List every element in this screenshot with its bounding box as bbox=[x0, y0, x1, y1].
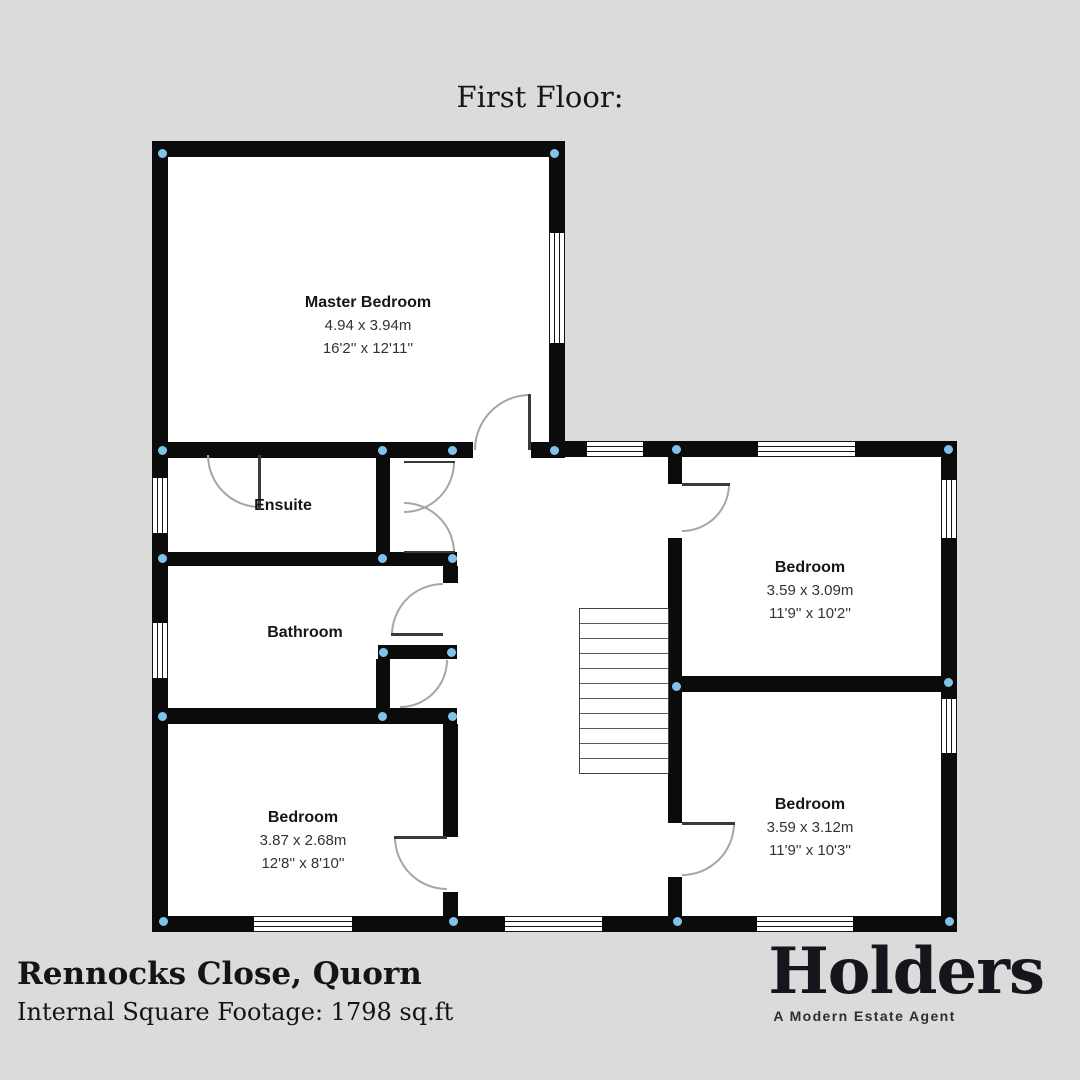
wall-junction-dot bbox=[158, 712, 167, 721]
room-name: Bathroom bbox=[245, 621, 365, 644]
door-leaf-landing-cupboard-lower bbox=[404, 551, 455, 553]
wall-junction-dot bbox=[550, 446, 559, 455]
door-leaf-master-bedroom bbox=[528, 394, 531, 450]
room-name: Ensuite bbox=[223, 494, 343, 517]
room-label-bedroom-bottom-right: Bedroom 3.59 x 3.12m 11'9'' x 10'3'' bbox=[710, 793, 910, 862]
room-name: Bedroom bbox=[710, 556, 910, 579]
wall-junction-dot bbox=[448, 446, 457, 455]
window-bottom-landing bbox=[505, 916, 602, 932]
room-dimensions-metric: 4.94 x 3.94m bbox=[268, 314, 468, 337]
wall-bedroom-left-east-upper bbox=[443, 724, 458, 837]
wall-junction-dot bbox=[158, 149, 167, 158]
room-label-bedroom-top-right: Bedroom 3.59 x 3.09m 11'9'' x 10'2'' bbox=[710, 556, 910, 625]
wall-cupboard-west bbox=[376, 659, 390, 708]
room-dimensions-imperial: 11'9'' x 10'2'' bbox=[710, 602, 910, 625]
door-leaf-landing-cupboard-upper bbox=[404, 461, 455, 463]
room-dimensions-metric: 3.59 x 3.09m bbox=[710, 579, 910, 602]
square-footage: Internal Square Footage: 1798 sq.ft bbox=[17, 998, 453, 1026]
wall-ensuite-east bbox=[376, 458, 390, 552]
wall-bedroom-left-east-lower bbox=[443, 892, 458, 916]
wall-junction-dot bbox=[378, 712, 387, 721]
property-address: Rennocks Close, Quorn bbox=[17, 956, 422, 992]
window-wing-top-right bbox=[758, 441, 855, 457]
wall-corridor-middle bbox=[668, 538, 682, 823]
window-bedroom-bottom-right bbox=[941, 699, 957, 753]
door-leaf-bathroom bbox=[391, 633, 443, 636]
wall-right-bedrooms-divider bbox=[682, 676, 941, 692]
room-name: Master Bedroom bbox=[268, 291, 468, 314]
window-ensuite bbox=[152, 478, 168, 533]
wall-junction-dot bbox=[378, 446, 387, 455]
wall-bathroom-bedroom-divider bbox=[152, 708, 457, 724]
page-title: First Floor: bbox=[0, 80, 1080, 114]
wall-junction-dot bbox=[449, 917, 458, 926]
wall-cupboard-top bbox=[378, 645, 457, 659]
room-label-bedroom-left: Bedroom 3.87 x 2.68m 12'8'' x 8'10'' bbox=[203, 806, 403, 875]
wall-corridor-upper bbox=[668, 457, 682, 484]
brand-tagline: A Modern Estate Agent bbox=[768, 1008, 1044, 1024]
wall-junction-dot bbox=[673, 917, 682, 926]
window-bottom-bedroom-right bbox=[757, 916, 853, 932]
room-dimensions-imperial: 12'8'' x 8'10'' bbox=[203, 852, 403, 875]
staircase bbox=[579, 608, 669, 774]
wall-exterior-left bbox=[152, 141, 168, 932]
window-bedroom-top-right bbox=[941, 480, 957, 538]
wall-exterior-top bbox=[152, 141, 565, 157]
room-label-master-bedroom: Master Bedroom 4.94 x 3.94m 16'2'' x 12'… bbox=[268, 291, 468, 360]
window-bottom-bedroom-left bbox=[254, 916, 352, 932]
window-master-right bbox=[549, 233, 565, 343]
wall-junction-dot bbox=[379, 648, 388, 657]
room-label-ensuite: Ensuite bbox=[223, 494, 343, 517]
wall-junction-dot bbox=[447, 648, 456, 657]
wall-junction-dot bbox=[448, 712, 457, 721]
wall-bathroom-door-stub bbox=[443, 566, 458, 583]
wall-master-divider-left bbox=[152, 442, 473, 458]
wall-junction-dot bbox=[672, 682, 681, 691]
brand-logo-block: Holders A Modern Estate Agent bbox=[768, 938, 1044, 1024]
wall-junction-dot bbox=[672, 445, 681, 454]
room-dimensions-imperial: 11'9'' x 10'3'' bbox=[710, 839, 910, 862]
wall-junction-dot bbox=[550, 149, 559, 158]
wall-junction-dot bbox=[944, 678, 953, 687]
window-bathroom bbox=[152, 623, 168, 678]
wall-junction-dot bbox=[945, 917, 954, 926]
wall-master-divider-right bbox=[531, 442, 549, 458]
wall-junction-dot bbox=[159, 917, 168, 926]
door-leaf-bedroom-top-right bbox=[682, 483, 730, 486]
wall-corridor-lower bbox=[668, 877, 682, 916]
wall-ensuite-bathroom-divider bbox=[152, 552, 457, 566]
brand-logo-wordmark: Holders bbox=[768, 938, 1044, 1006]
floor-plan-page: First Floor: bbox=[0, 0, 1080, 1080]
wall-junction-dot bbox=[944, 445, 953, 454]
room-name: Bedroom bbox=[203, 806, 403, 829]
wall-junction-dot bbox=[378, 554, 387, 563]
window-wing-top-left bbox=[587, 441, 643, 457]
wall-junction-dot bbox=[158, 446, 167, 455]
room-name: Bedroom bbox=[710, 793, 910, 816]
room-dimensions-imperial: 16'2'' x 12'11'' bbox=[268, 337, 468, 360]
wall-junction-dot bbox=[158, 554, 167, 563]
room-dimensions-metric: 3.87 x 2.68m bbox=[203, 829, 403, 852]
room-dimensions-metric: 3.59 x 3.12m bbox=[710, 816, 910, 839]
wall-junction-dot bbox=[448, 554, 457, 563]
room-label-bathroom: Bathroom bbox=[245, 621, 365, 644]
